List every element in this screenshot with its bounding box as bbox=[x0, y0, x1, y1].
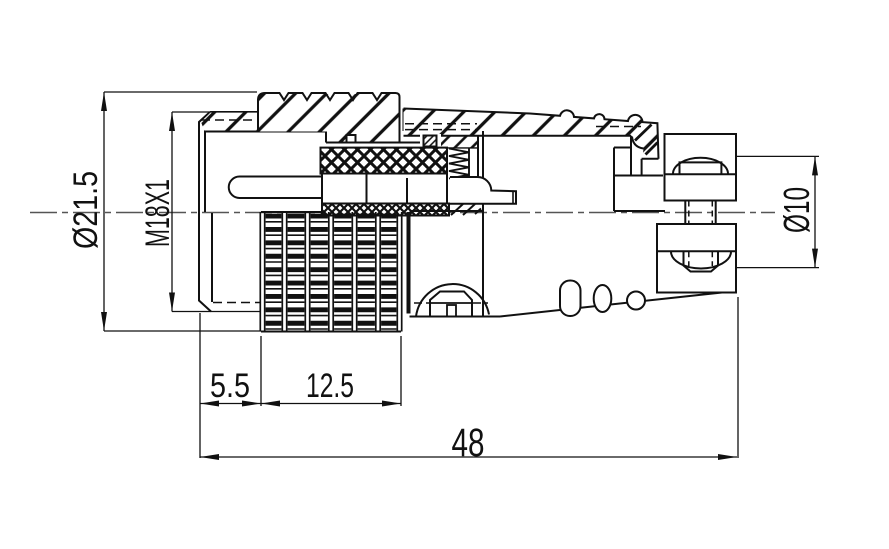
svg-text:12.5: 12.5 bbox=[306, 367, 354, 405]
svg-text:48: 48 bbox=[452, 421, 485, 465]
svg-text:Ø21.5: Ø21.5 bbox=[67, 171, 105, 249]
svg-text:Ø10: Ø10 bbox=[776, 187, 817, 233]
svg-text:M18X1: M18X1 bbox=[139, 179, 177, 247]
svg-text:5.5: 5.5 bbox=[210, 367, 250, 405]
